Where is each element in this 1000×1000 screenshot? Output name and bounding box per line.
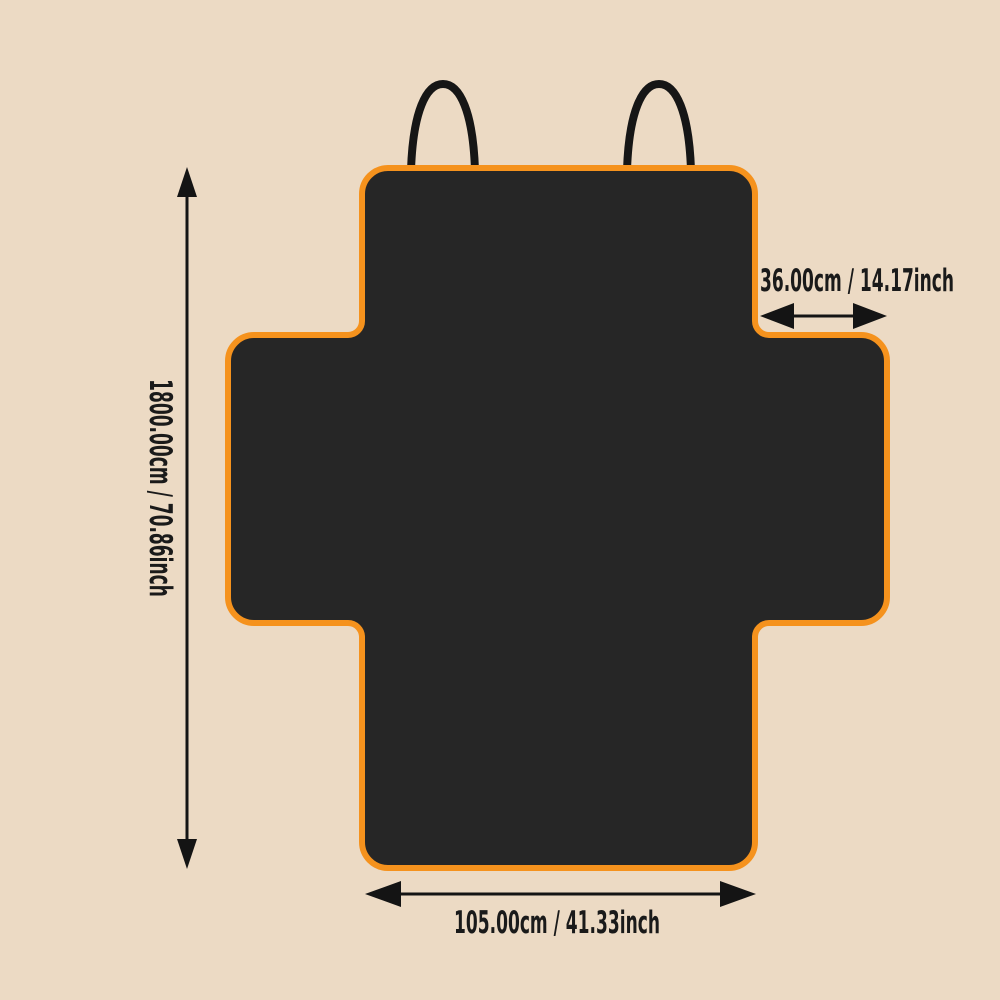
height-dimension-arrow-icon (177, 167, 197, 869)
height-dimension-label: 1800.00cm / 70.86inch (142, 379, 178, 597)
flap-width-dimension-arrow-icon (760, 303, 887, 329)
flap-width-dimension-label: 36.00cm / 14.17inch (760, 263, 954, 299)
left-strap-loop-icon (411, 84, 475, 170)
product-dimension-diagram: 1800.00cm / 70.86inch 36.00cm / 14.17inc… (0, 0, 1000, 1000)
right-strap-loop-icon (627, 84, 691, 170)
bottom-width-dimension-label: 105.00cm / 41.33inch (454, 905, 660, 941)
bottom-width-dimension-arrow-icon (365, 881, 756, 907)
